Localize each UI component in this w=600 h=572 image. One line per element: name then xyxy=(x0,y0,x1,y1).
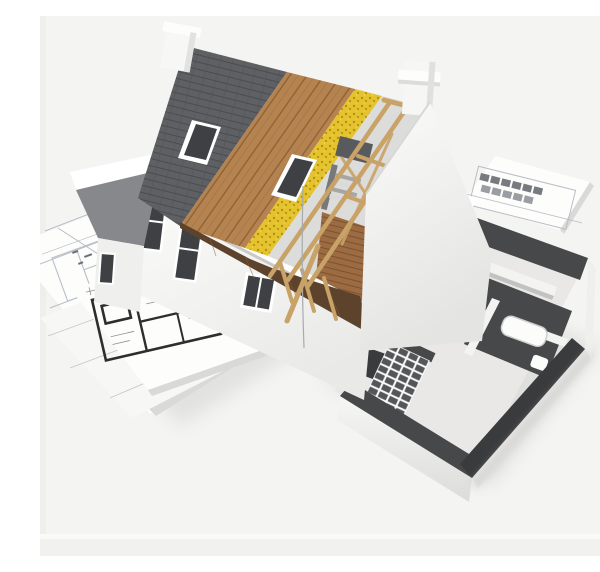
window-glass xyxy=(100,254,114,283)
cutaway-house-illustration: 3D cutaway house model on architectural … xyxy=(40,16,600,556)
window xyxy=(98,252,116,285)
background-line-bottom xyxy=(40,534,600,539)
architectural-render: 3D cutaway house model on architectural … xyxy=(40,16,600,556)
background-band-bottom xyxy=(40,539,600,556)
